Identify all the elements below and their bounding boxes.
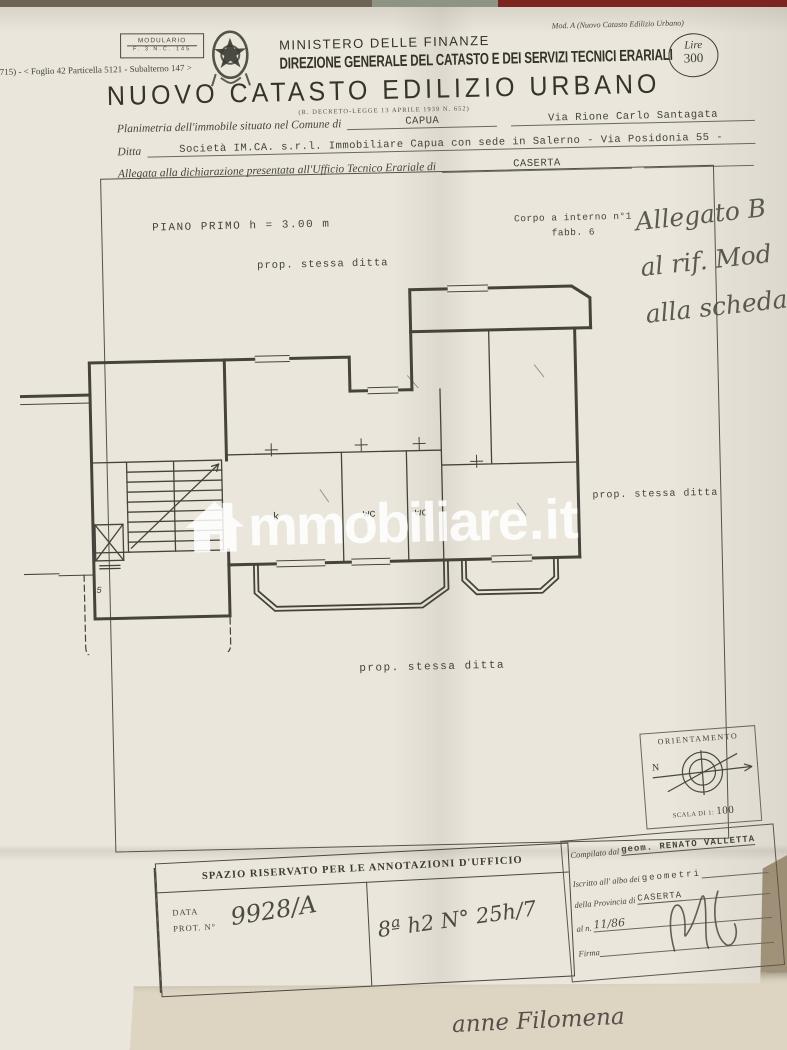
firma-label: Firma xyxy=(578,947,600,959)
compass-icon: N xyxy=(642,739,758,805)
watermark-text: mmobiliare xyxy=(247,487,527,558)
orientation-widget: ORIENTAMENTO N SCALA DI 1: 100 xyxy=(639,725,762,829)
stair-mark: 5 xyxy=(96,586,102,596)
immobiliare-watermark: mmobiliare.it xyxy=(183,486,579,560)
compiled-value: geom. RENATO VALLETTA xyxy=(621,834,756,856)
ditta-label: Ditta xyxy=(117,146,147,159)
corpo-label: Corpo a interno n°1 fabb. 6 xyxy=(514,209,632,242)
office-box-divider xyxy=(366,882,372,986)
cadastral-reference: (B715) - < Foglio 42 Particella 5121 - S… xyxy=(0,62,241,78)
ditta-value: Società IM.CA. s.r.l. Immobiliare Capua … xyxy=(147,131,755,158)
compiled-label: Compilato dal xyxy=(570,846,620,860)
lire-value: 300 xyxy=(669,51,717,66)
office-note-handwritten: 8ª h2 N° 25h/7 xyxy=(376,896,538,942)
province-label: della Provincia di xyxy=(574,895,636,910)
watermark-suffix: .it xyxy=(528,486,579,552)
stamp-line1: MODULARIO xyxy=(121,37,203,44)
scale-label: SCALA DI 1: xyxy=(673,809,715,819)
comune-label: Planimetria dell'immobile situato nel Co… xyxy=(117,118,348,135)
comune-value: CAPUA xyxy=(347,114,497,130)
corpo-line1: Corpo a interno n°1 xyxy=(514,209,632,227)
data-label: DATA xyxy=(172,906,198,917)
surveyor-box: Compilato dal geom. RENATO VALLETTA Iscr… xyxy=(560,823,785,982)
document-content: MODULARIO F. 3 N.C. 145 (B715) - < Fogli… xyxy=(0,0,787,1050)
modulario-stamp: MODULARIO F. 3 N.C. 145 xyxy=(120,33,204,58)
number-label: al n. xyxy=(576,923,592,934)
number-value: 11/86 xyxy=(593,916,626,933)
floor-plan-drawing: k wc wc 5 xyxy=(17,269,725,657)
model-note: Mod. A (Nuovo Catasto Edilizio Urbano) xyxy=(552,18,684,30)
office-box-title: SPAZIO RISERVATO PER LE ANNOTAZIONI D'UF… xyxy=(156,844,569,894)
corpo-line2: fabb. 6 xyxy=(514,224,632,242)
prot-label: PROT. N° xyxy=(173,921,216,933)
scale-value: 100 xyxy=(716,804,735,817)
compass-north-label: N xyxy=(652,762,660,774)
stamp-line2: F. 3 N.C. 145 xyxy=(127,45,197,52)
via-value: Via Rione Carlo Santagata xyxy=(511,108,755,127)
house-icon xyxy=(183,497,246,556)
prot-number-handwritten: 9928/A xyxy=(229,890,319,931)
signature-scribble xyxy=(657,875,754,966)
photo-of-cadastral-document: anne Filomena MODULARIO F. 3 N.C. 145 (B… xyxy=(0,0,787,1050)
scale-note: SCALA DI 1: 100 xyxy=(646,802,761,823)
enrolled-label: Iscritto all' albo dei xyxy=(572,874,640,889)
office-annotations-box: SPAZIO RISERVATO PER LE ANNOTAZIONI D'UF… xyxy=(155,843,575,998)
